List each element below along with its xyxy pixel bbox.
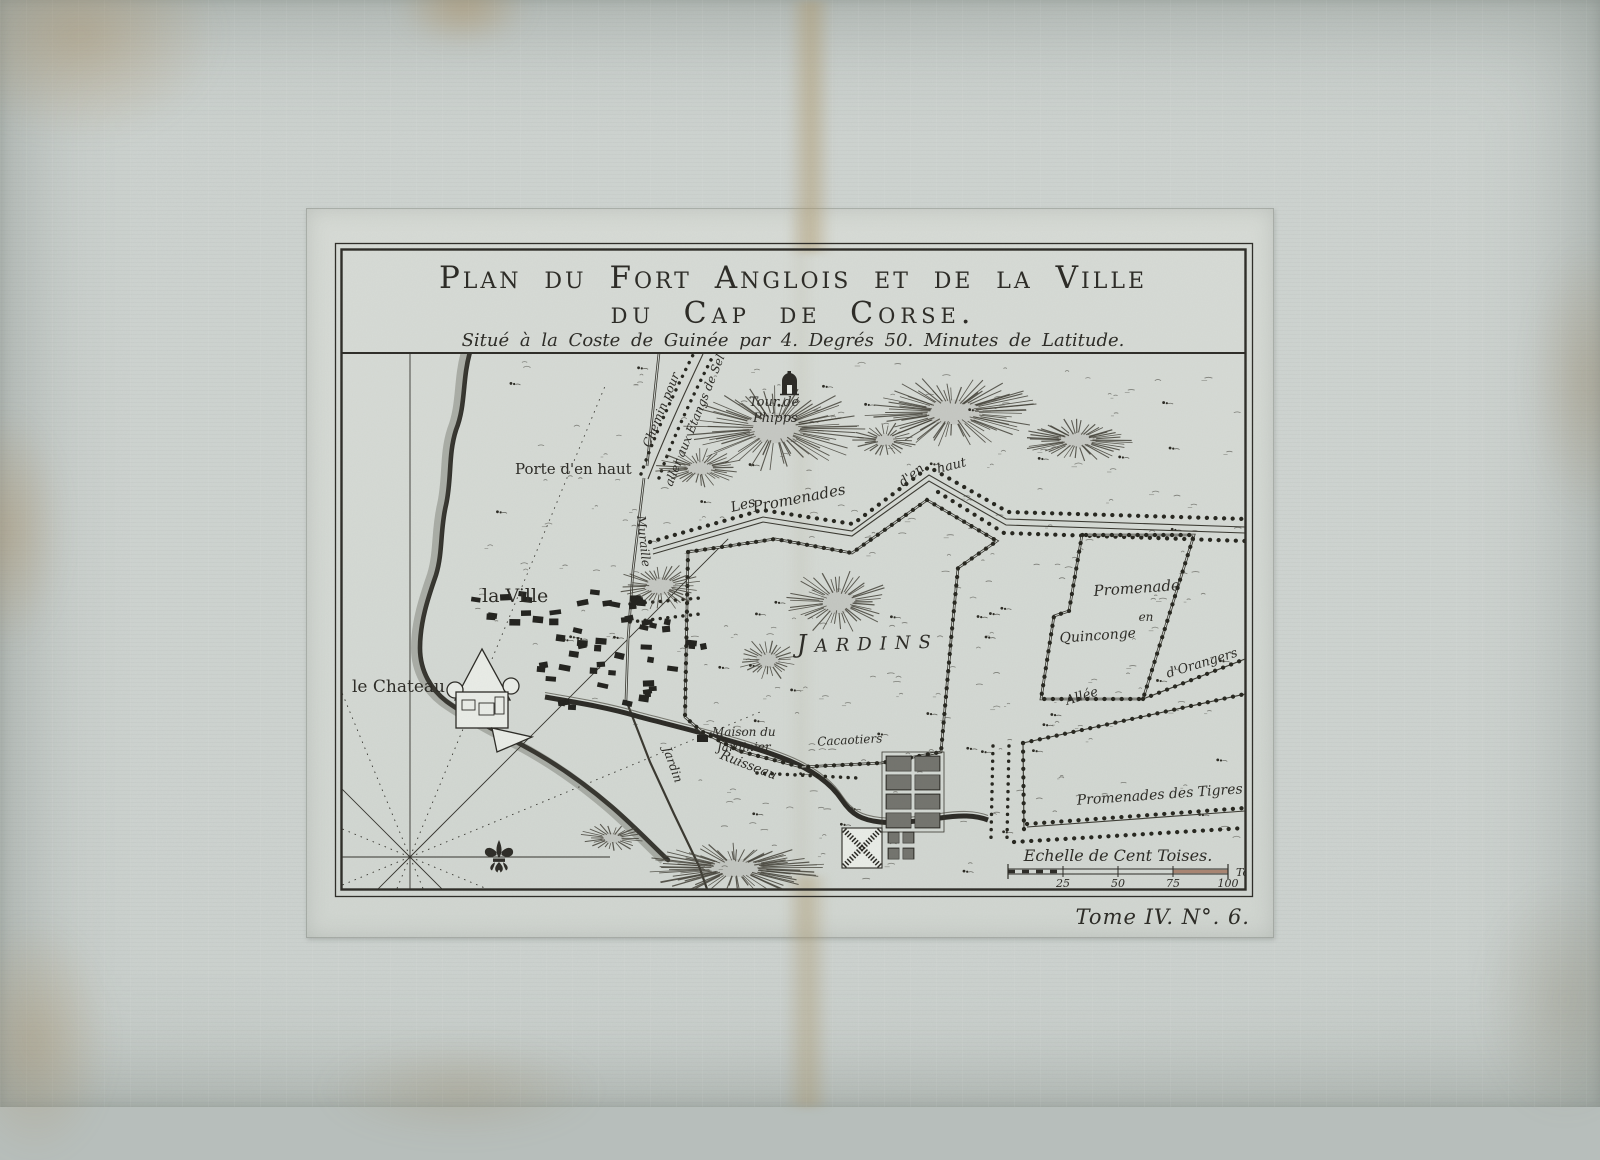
- paper-grain-overlay: [0, 0, 1600, 1107]
- map-engraving: Plan du Fort Anglois et de la Ville du C…: [0, 0, 1600, 1107]
